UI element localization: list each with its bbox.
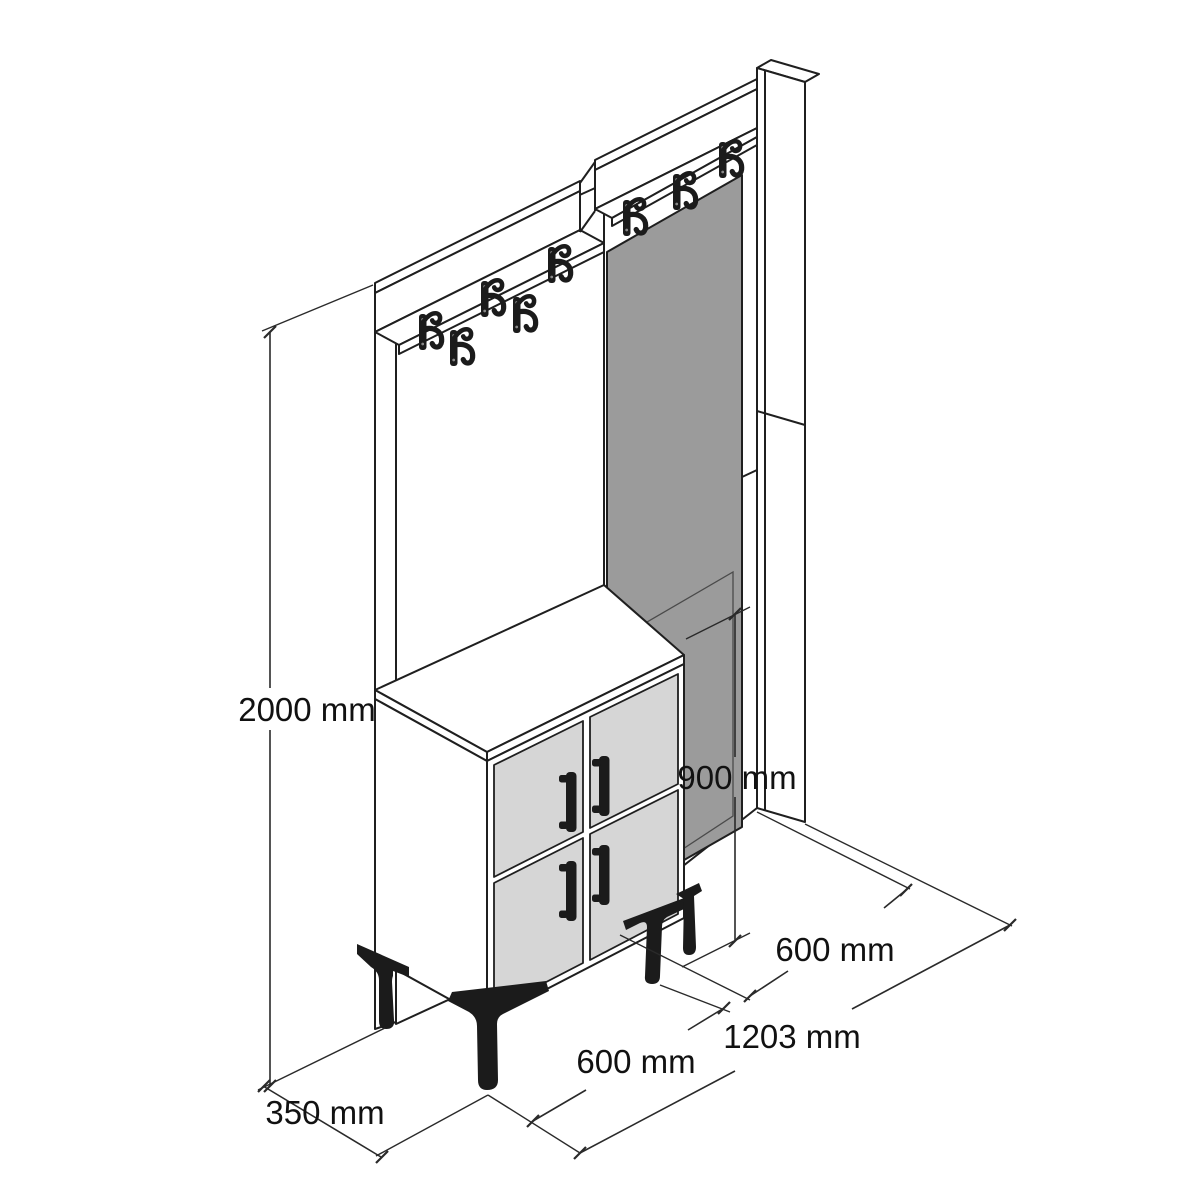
cabinet-leg-front-left bbox=[448, 981, 549, 1090]
overall-width-label: 1203 mm bbox=[723, 1018, 861, 1055]
hallway-unit-drawing: 2000 mm 900 mm 600 mm 1203 mm 600 mm 350… bbox=[0, 0, 1200, 1200]
cabinet-height-label: 900 mm bbox=[677, 759, 796, 796]
module-step-top bbox=[580, 162, 595, 183]
overall-height-label: 2000 mm bbox=[238, 691, 376, 728]
right-panel-width-label: 600 mm bbox=[775, 931, 894, 968]
depth-label: 350 mm bbox=[265, 1094, 384, 1131]
technical-drawing-page: 2000 mm 900 mm 600 mm 1203 mm 600 mm 350… bbox=[0, 0, 1200, 1200]
cabinet-width-label: 600 mm bbox=[576, 1043, 695, 1080]
